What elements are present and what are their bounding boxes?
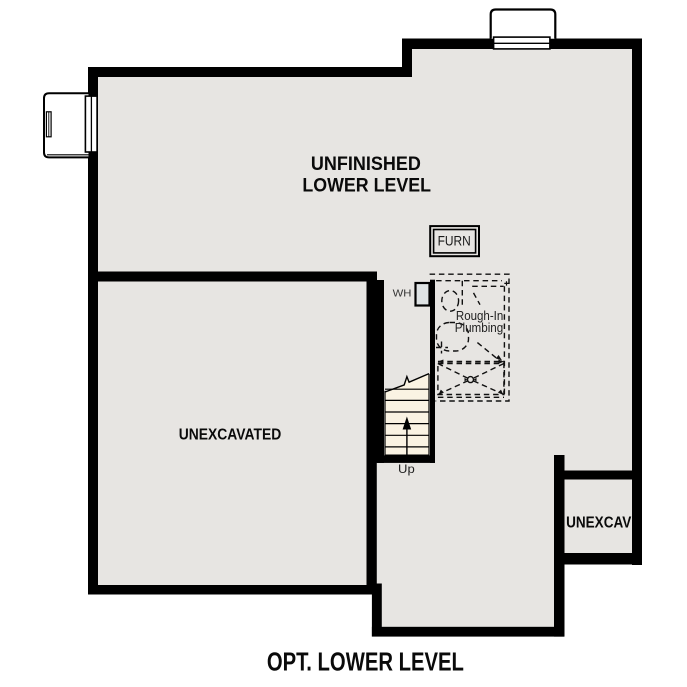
svg-text:UNEXCAVATED: UNEXCAVATED: [179, 426, 282, 443]
svg-text:FURN: FURN: [438, 233, 471, 249]
svg-text:Plumbing: Plumbing: [455, 320, 504, 335]
svg-text:WH: WH: [393, 288, 412, 300]
svg-text:OPT. LOWER LEVEL: OPT. LOWER LEVEL: [267, 646, 464, 676]
svg-text:UNEXCAV: UNEXCAV: [566, 515, 631, 532]
svg-text:Up: Up: [398, 462, 415, 476]
svg-text:LOWER LEVEL: LOWER LEVEL: [302, 175, 431, 196]
svg-text:UNFINISHED: UNFINISHED: [311, 154, 421, 175]
